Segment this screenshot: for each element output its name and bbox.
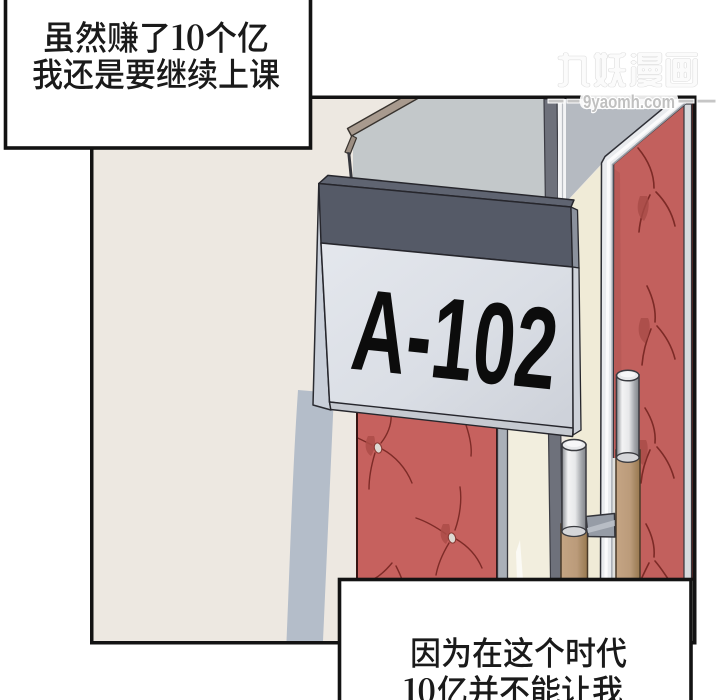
svg-text:9yaomh.com: 9yaomh.com	[583, 91, 675, 112]
svg-text:A-102: A-102	[346, 264, 563, 414]
